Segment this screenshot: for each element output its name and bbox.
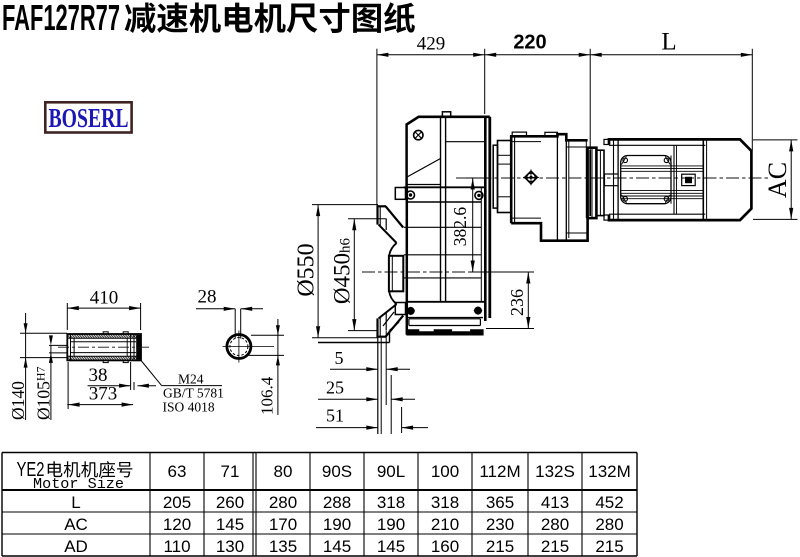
svg-text:110: 110 xyxy=(163,537,190,556)
svg-text:ISO 4018: ISO 4018 xyxy=(163,400,215,415)
svg-text:106.4: 106.4 xyxy=(258,376,277,415)
svg-text:220: 220 xyxy=(513,32,546,54)
svg-text:132M: 132M xyxy=(588,462,631,481)
svg-text:365: 365 xyxy=(486,493,514,512)
svg-text:318: 318 xyxy=(431,493,459,512)
svg-text:5: 5 xyxy=(335,348,344,368)
svg-text:51: 51 xyxy=(326,406,344,426)
svg-text:Motor Size: Motor Size xyxy=(33,477,124,493)
svg-text:145: 145 xyxy=(323,537,351,556)
svg-text:280: 280 xyxy=(541,515,569,534)
svg-text:90L: 90L xyxy=(377,462,405,481)
svg-text:230: 230 xyxy=(486,515,514,534)
svg-text:GB/T 5781: GB/T 5781 xyxy=(163,386,224,401)
svg-text:215: 215 xyxy=(541,537,569,556)
svg-text:L: L xyxy=(71,493,80,512)
svg-text:210: 210 xyxy=(431,515,459,534)
svg-text:452: 452 xyxy=(595,493,623,512)
svg-text:AC: AC xyxy=(763,162,792,198)
svg-text:413: 413 xyxy=(541,493,569,512)
svg-text:M24: M24 xyxy=(178,372,204,387)
svg-text:190: 190 xyxy=(377,515,405,534)
svg-text:28: 28 xyxy=(198,286,217,307)
svg-text:170: 170 xyxy=(269,515,297,534)
svg-text:71: 71 xyxy=(221,462,240,481)
svg-text:160: 160 xyxy=(431,537,459,556)
svg-text:236: 236 xyxy=(507,289,527,316)
svg-text:AD: AD xyxy=(64,537,88,556)
svg-text:410: 410 xyxy=(90,288,119,309)
svg-text:L: L xyxy=(661,29,676,56)
svg-text:135: 135 xyxy=(269,537,297,556)
svg-text:130: 130 xyxy=(216,537,244,556)
svg-text:132S: 132S xyxy=(535,462,575,481)
svg-text:215: 215 xyxy=(486,537,514,556)
svg-text:AC: AC xyxy=(64,515,88,534)
svg-text:145: 145 xyxy=(216,515,244,534)
svg-text:382.6: 382.6 xyxy=(450,207,470,247)
svg-text:260: 260 xyxy=(216,493,244,512)
svg-text:205: 205 xyxy=(163,493,191,512)
svg-text:FAF127R77: FAF127R77 xyxy=(2,0,120,38)
svg-text:280: 280 xyxy=(595,515,623,534)
svg-text:190: 190 xyxy=(323,515,351,534)
svg-text:Ø550: Ø550 xyxy=(294,243,320,296)
svg-text:Ø140: Ø140 xyxy=(8,381,28,420)
svg-text:318: 318 xyxy=(377,493,405,512)
svg-text:373: 373 xyxy=(89,384,118,405)
svg-text:112M: 112M xyxy=(479,462,520,481)
svg-text:BOSERL: BOSERL xyxy=(49,102,129,133)
svg-text:280: 280 xyxy=(269,493,297,512)
svg-text:120: 120 xyxy=(163,515,191,534)
svg-text:90S: 90S xyxy=(322,462,352,481)
svg-text:429: 429 xyxy=(417,34,446,55)
svg-text:288: 288 xyxy=(323,493,351,512)
svg-text:215: 215 xyxy=(595,537,623,556)
svg-text:63: 63 xyxy=(168,462,187,481)
svg-text:145: 145 xyxy=(377,537,405,556)
svg-text:25: 25 xyxy=(326,378,344,398)
svg-text:100: 100 xyxy=(431,462,459,481)
svg-text:80: 80 xyxy=(274,462,293,481)
